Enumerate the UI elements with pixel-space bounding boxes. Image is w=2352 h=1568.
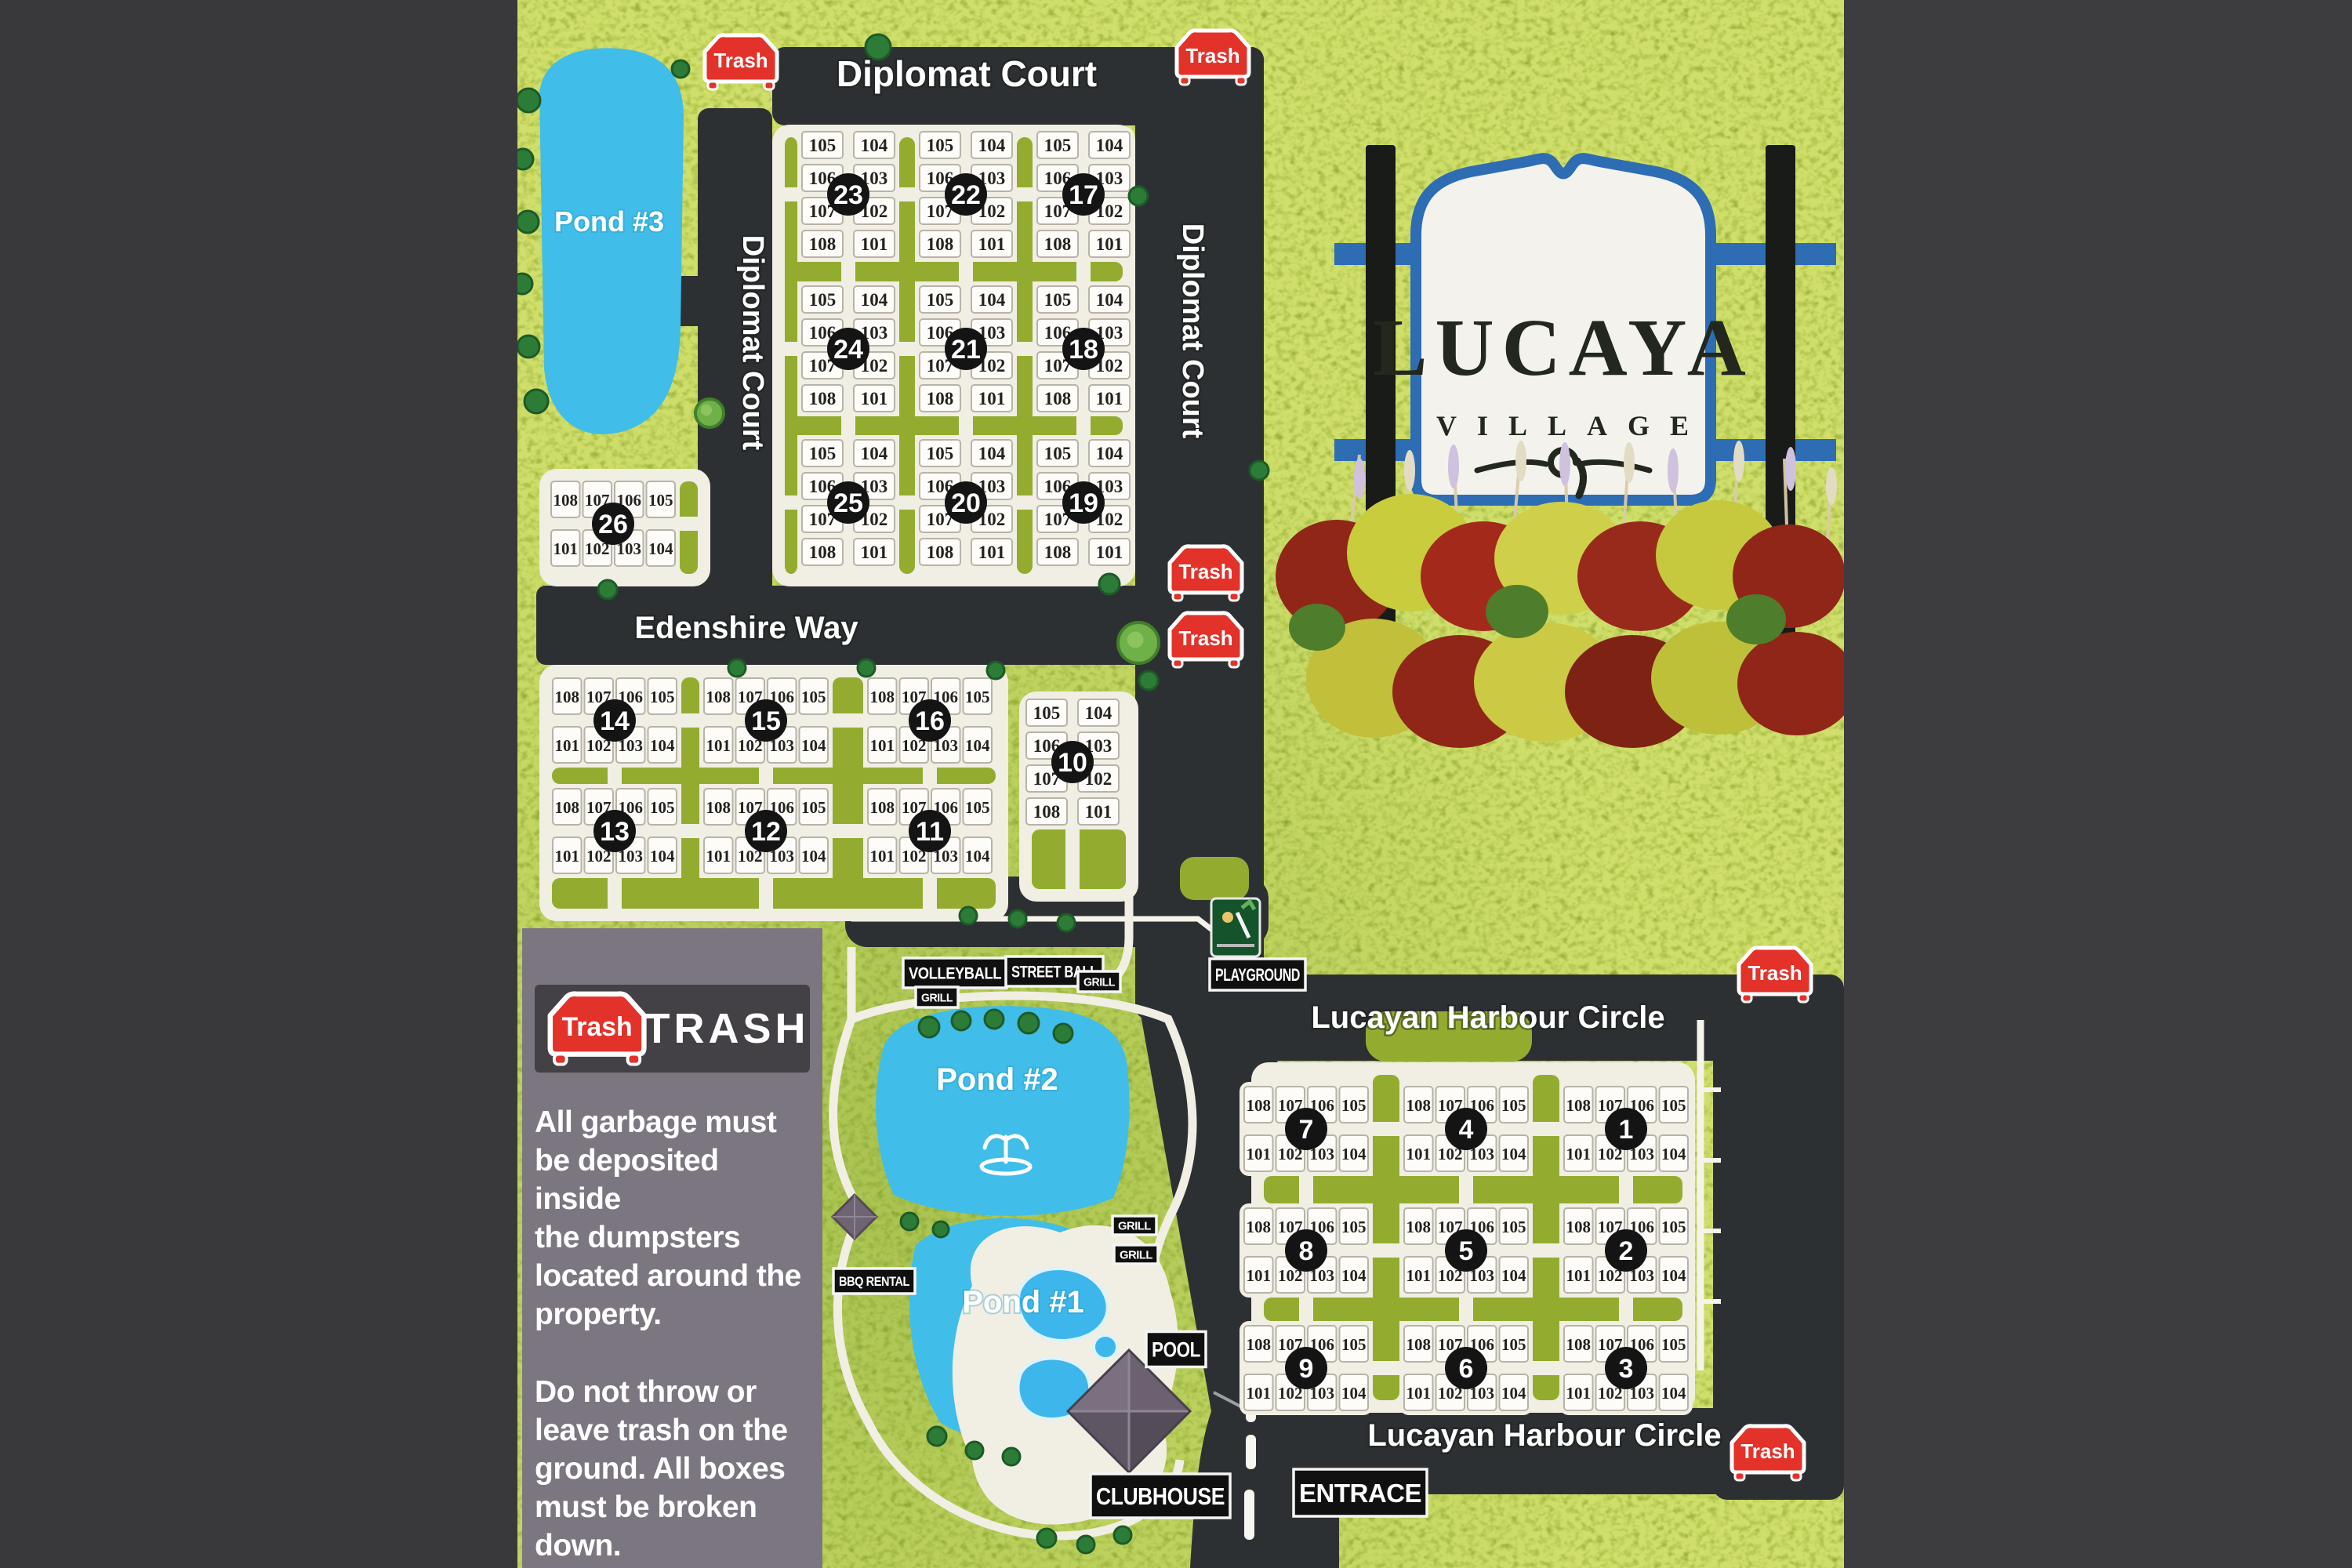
svg-text:POOL: POOL [1152, 1338, 1200, 1362]
trash-sign: Trash [1732, 1426, 1804, 1480]
lot-region: 1081011071021061031051047108101107102106… [1240, 1062, 1695, 1415]
pond-label: Pond #1 [962, 1285, 1084, 1319]
unit-number: 101 [861, 234, 888, 254]
bush-icon [1054, 1024, 1073, 1043]
bush-icon [1003, 1448, 1020, 1465]
unit-number: 104 [801, 847, 826, 866]
unit-number: 105 [1033, 703, 1061, 723]
unit-number: 104 [1501, 1384, 1526, 1403]
block-number: 9 [1299, 1354, 1314, 1384]
unit-number: 104 [650, 847, 675, 866]
unit-number: 104 [1501, 1145, 1526, 1163]
bush-icon [1129, 187, 1148, 205]
unit-number: 104 [1341, 1145, 1367, 1163]
unit-number: 105 [965, 798, 990, 817]
amenity-label-volleyball: VOLLEYBALL [903, 958, 1007, 988]
pond-label: Pond #2 [936, 1062, 1058, 1097]
unit-number: 104 [965, 847, 990, 866]
unit-number: 101 [861, 389, 888, 408]
unit-number: 101 [1566, 1266, 1592, 1285]
unit-number: 105 [927, 444, 954, 463]
lot-region: 1051041061031071021081012310510410610310… [772, 125, 1135, 586]
unit-number: 108 [927, 234, 954, 254]
block-number: 16 [915, 706, 945, 736]
trash-rules-panel: Trash TRASH All garbage must be deposite… [522, 928, 822, 1568]
pond-2-shape [876, 1006, 1129, 1216]
unit-number: 108 [809, 543, 837, 562]
unit-number: 108 [1044, 389, 1072, 408]
unit-number: 105 [650, 688, 675, 706]
unit-number: 101 [1096, 543, 1123, 562]
bush-icon [1018, 1013, 1039, 1033]
pond-label: Pond #3 [554, 205, 664, 238]
street-label: Diplomat Court [1176, 223, 1209, 439]
trash-sign-text: Trash [1748, 961, 1802, 985]
unit-number: 108 [1033, 802, 1061, 822]
unit-number: 108 [555, 798, 580, 817]
bush-icon [1009, 910, 1026, 927]
bush-icon [901, 1213, 918, 1230]
bush-icon [728, 659, 746, 677]
block-number: 19 [1069, 488, 1098, 518]
unit-number: 105 [1661, 1218, 1686, 1236]
unit-number: 108 [809, 389, 837, 408]
unit-number: 108 [1566, 1335, 1592, 1354]
svg-text:BBQ RENTAL: BBQ RENTAL [839, 1274, 909, 1289]
unit-number: 105 [927, 136, 954, 155]
unit-number: 108 [1406, 1335, 1432, 1354]
unit-number: 104 [1661, 1145, 1686, 1163]
unit-number: 104 [1096, 444, 1123, 463]
unit-number: 108 [555, 688, 580, 706]
block-number: 18 [1069, 335, 1098, 365]
block-number: 13 [600, 817, 630, 847]
unit-number: 108 [870, 688, 895, 706]
unit-number: 105 [1044, 290, 1072, 310]
unit-number: 108 [1247, 1096, 1272, 1115]
block-number: 11 [916, 817, 944, 847]
unit-number: 105 [1044, 444, 1072, 463]
unit-number: 101 [978, 543, 1006, 562]
block-number: 8 [1299, 1236, 1314, 1266]
unit-number: 108 [1044, 234, 1072, 254]
block-number: 25 [833, 488, 863, 518]
svg-text:GRILL: GRILL [1118, 1219, 1151, 1232]
block-number: 5 [1459, 1236, 1474, 1266]
unit-number: 104 [1085, 703, 1112, 723]
bush-icon [1250, 461, 1269, 480]
bush-icon [1058, 914, 1075, 931]
unit-number: 105 [809, 136, 837, 155]
block-number: 14 [600, 706, 630, 736]
svg-text:GRILL: GRILL [921, 991, 953, 1004]
unit-number: 105 [801, 798, 826, 817]
unit-number: 105 [1501, 1335, 1526, 1354]
unit-number: 105 [1341, 1218, 1367, 1236]
unit-number: 108 [706, 798, 731, 817]
block-number: 7 [1299, 1115, 1314, 1145]
trash-sign: Trash [1170, 613, 1242, 667]
block-number: 22 [951, 180, 981, 210]
unit-number: 101 [1406, 1145, 1432, 1163]
bush-icon [1139, 671, 1158, 690]
bush-icon [1037, 1529, 1056, 1548]
street-label: Edenshire Way [634, 611, 858, 645]
amenity-label-grill: GRILL [1078, 971, 1120, 992]
unit-number: 101 [978, 234, 1006, 254]
unit-number: 104 [1501, 1266, 1526, 1285]
amenity-label-playground: PLAYGROUND [1210, 959, 1305, 990]
unit-number: 105 [650, 798, 675, 817]
bush-icon [966, 1442, 983, 1459]
bush-icon [952, 1011, 971, 1030]
unit-number: 101 [870, 736, 895, 755]
unit-number: 104 [978, 290, 1006, 310]
svg-text:CLUBHOUSE: CLUBHOUSE [1096, 1483, 1225, 1510]
unit-number: 105 [648, 491, 673, 510]
street-label: Lucayan Harbour Circle [1311, 1000, 1664, 1035]
block-number: 10 [1058, 748, 1087, 778]
block-number: 2 [1619, 1236, 1634, 1266]
unit-number: 104 [965, 736, 990, 755]
trash-sign-text: Trash [1185, 44, 1240, 67]
unit-number: 104 [1341, 1266, 1367, 1285]
trash-logo-text: TRASH [644, 1005, 810, 1052]
svg-text:GRILL: GRILL [1083, 975, 1115, 989]
amenity-label-entrace: ENTRACE [1294, 1469, 1427, 1516]
amenity-label-grill: GRILL [916, 987, 958, 1007]
unit-number: 105 [801, 688, 826, 706]
bush-icon [1114, 1526, 1131, 1544]
unit-number: 101 [1247, 1145, 1272, 1163]
block-number: 26 [598, 510, 628, 539]
unit-number: 104 [1661, 1266, 1686, 1285]
trash-sign-text: Trash [1178, 560, 1232, 583]
bush-icon [598, 580, 617, 599]
street-label: Lucayan Harbour Circle [1367, 1418, 1721, 1453]
unit-number: 101 [1566, 1384, 1592, 1403]
unit-number: 104 [650, 736, 675, 755]
unit-number: 105 [809, 290, 837, 310]
unit-number: 104 [978, 136, 1006, 155]
unit-number: 104 [1341, 1384, 1367, 1403]
block-number: 4 [1459, 1115, 1474, 1145]
lot-region: 10510410610310710210810110 [1019, 691, 1138, 902]
tree-highlight [701, 405, 712, 416]
unit-number: 104 [861, 290, 888, 310]
bush-icon [919, 1017, 939, 1037]
block-number: 17 [1069, 180, 1098, 210]
unit-number: 105 [1501, 1096, 1526, 1115]
trash-sign: Trash [705, 35, 777, 89]
unit-number: 101 [1406, 1266, 1432, 1285]
unit-number: 101 [1406, 1384, 1432, 1403]
unit-number: 101 [555, 736, 580, 755]
unit-number: 108 [1406, 1096, 1432, 1115]
legend-paragraph-1: All garbage must be deposited inside the… [535, 1103, 810, 1334]
bush-icon [524, 390, 548, 413]
street-label: Diplomat Court [736, 235, 769, 451]
lot-region: 10810110710210610310510426 [539, 469, 710, 586]
screenshot-root: 1051041061031071021081012310510410610310… [0, 0, 2352, 1568]
unit-number: 105 [809, 444, 837, 463]
unit-number: 101 [1096, 234, 1123, 254]
bush-icon [985, 1010, 1004, 1029]
amenity-label-grill: GRILL [1114, 1245, 1158, 1264]
unit-number: 104 [1096, 136, 1123, 155]
block-number: 23 [833, 180, 863, 210]
unit-number: 101 [870, 847, 895, 866]
unit-number: 101 [554, 539, 579, 558]
amenity-label-bbq-rental: BBQ RENTAL [833, 1269, 915, 1294]
street-label: Diplomat Court [837, 53, 1097, 94]
unit-number: 108 [1247, 1218, 1272, 1236]
trash-sign-text: Trash [1178, 626, 1232, 650]
unit-number: 108 [927, 389, 954, 408]
amenity-label-grill: GRILL [1112, 1216, 1156, 1235]
unit-number: 101 [1096, 389, 1123, 408]
unit-number: 101 [1085, 802, 1112, 822]
unit-number: 105 [1044, 136, 1072, 155]
unit-number: 105 [1341, 1335, 1367, 1354]
unit-number: 104 [861, 136, 888, 155]
unit-number: 108 [870, 798, 895, 817]
bush-icon [858, 659, 875, 677]
bush-icon [960, 907, 977, 924]
tree-highlight [1127, 632, 1144, 648]
unit-number: 104 [1661, 1384, 1686, 1403]
unit-number: 101 [706, 847, 731, 866]
unit-number: 104 [648, 539, 673, 558]
playground-picture-sign [1211, 898, 1260, 956]
unit-number: 101 [1247, 1266, 1272, 1285]
svg-text:GRILL: GRILL [1120, 1248, 1152, 1261]
unit-number: 105 [927, 290, 954, 310]
letterbox-left [0, 0, 517, 1568]
block-number: 20 [951, 488, 981, 518]
bush-icon [1077, 1536, 1094, 1553]
block-number: 1 [1619, 1115, 1634, 1145]
bush-icon [517, 89, 540, 112]
unit-number: 101 [555, 847, 580, 866]
unit-number: 105 [1661, 1335, 1686, 1354]
unit-number: 101 [706, 736, 731, 755]
bush-icon [1099, 574, 1120, 594]
bush-icon [927, 1427, 946, 1446]
unit-number: 108 [1247, 1335, 1272, 1354]
unit-number: 105 [1341, 1096, 1367, 1115]
unit-number: 108 [1406, 1218, 1432, 1236]
unit-number: 104 [861, 444, 888, 463]
letterbox-right [1844, 0, 2352, 1568]
block-number: 12 [751, 817, 781, 847]
trash-sign: Trash [1170, 546, 1242, 601]
unit-number: 104 [801, 736, 826, 755]
bush-icon [987, 662, 1004, 679]
trash-sign: Trash [1739, 948, 1811, 1002]
svg-text:PLAYGROUND: PLAYGROUND [1215, 965, 1300, 985]
bush-icon [933, 1221, 949, 1237]
pond-3-shape [539, 48, 684, 434]
trash-logo: Trash TRASH [535, 985, 810, 1076]
unit-number: 105 [1501, 1218, 1526, 1236]
bush-icon [672, 60, 689, 78]
sign-title: LUCAYA [1373, 303, 1754, 393]
trash-sign-text: Trash [562, 1012, 633, 1042]
unit-number: 101 [1566, 1145, 1592, 1163]
unit-number: 108 [706, 688, 731, 706]
legend-paragraph-2: Do not throw or leave trash on the groun… [535, 1373, 810, 1565]
trash-sign-text: Trash [713, 49, 768, 72]
unit-number: 108 [927, 543, 954, 562]
lot-region: 1081011071021061031051041410810110710210… [539, 665, 1008, 921]
unit-number: 101 [1247, 1384, 1272, 1403]
unit-number: 104 [1096, 290, 1123, 310]
block-number: 3 [1619, 1354, 1634, 1384]
block-number: 6 [1459, 1354, 1474, 1384]
trash-sign: Trash [1177, 31, 1249, 85]
amenity-label-clubhouse: CLUBHOUSE [1091, 1474, 1230, 1518]
block-number: 21 [951, 335, 981, 365]
unit-number: 108 [554, 491, 579, 510]
bush-icon [517, 211, 539, 233]
block-number: 24 [833, 335, 863, 365]
unit-number: 108 [809, 234, 837, 254]
unit-number: 108 [1566, 1218, 1592, 1236]
unit-number: 101 [978, 389, 1006, 408]
trash-sign-text: Trash [1740, 1439, 1795, 1463]
bush-icon [517, 336, 539, 358]
unit-number: 108 [1566, 1096, 1592, 1115]
svg-text:VOLLEYBALL: VOLLEYBALL [909, 965, 1002, 983]
unit-number: 105 [1661, 1096, 1686, 1115]
unit-number: 104 [978, 444, 1006, 463]
amenity-label-pool: POOL [1146, 1332, 1206, 1367]
sign-subtitle: VILLAGE [1436, 410, 1709, 441]
block-number: 15 [751, 706, 781, 736]
site-map: 1051041061031071021081012310510410610310… [0, 0, 2352, 1568]
unit-number: 101 [861, 543, 888, 562]
unit-number: 108 [1044, 543, 1072, 562]
svg-text:ENTRACE: ENTRACE [1299, 1479, 1421, 1508]
unit-number: 105 [965, 688, 990, 706]
